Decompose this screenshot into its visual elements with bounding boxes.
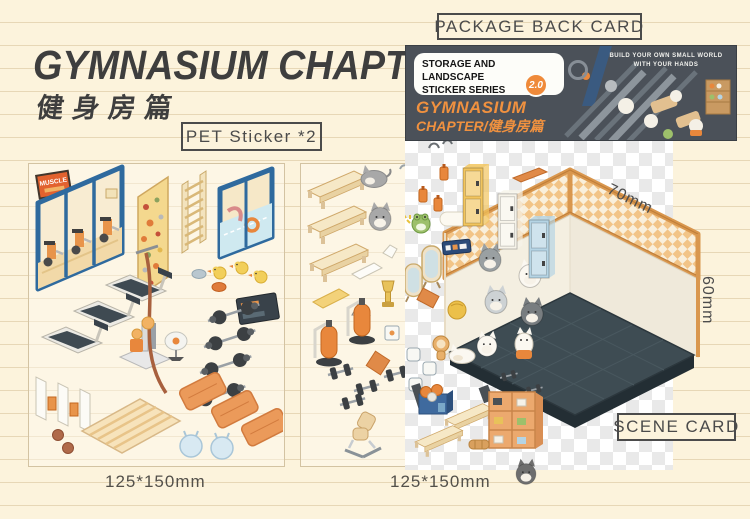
sheet1-size-label: 125*150mm [105,472,206,492]
floor-fan [165,332,187,361]
sheet2-size-label: 125*150mm [390,472,491,492]
sticker-sheet-1-art: MUSCLE [28,163,283,465]
medicine-balls [53,430,74,454]
version-badge: 2.0 [524,73,548,97]
page-title: GYMNASIUM CHAPTER [33,42,461,89]
package-title-line2: CHAPTER/健身房篇 [416,118,544,134]
package-tagline: BUILD YOUR OWN SMALL WORLD WITH YOUR HAN… [602,52,730,70]
yellow-locker [463,164,489,226]
punching-bags [315,298,375,367]
trophy [382,281,394,307]
pool-window [220,169,272,257]
package-back-card: STORAGE AND LANDSCAPE STICKER SERIES 2.0… [405,45,737,141]
dumbbells [326,362,410,410]
wooden-benches [308,171,368,282]
water-bottles [419,164,448,211]
page-subtitle-chinese: 健身房篇 [34,86,183,125]
wood-floor-mat [82,399,180,453]
scene-card-label: SCENE CARD [617,413,736,441]
gray-cat-sitting [369,202,391,231]
yellow-ball [448,301,466,319]
white-piece [383,245,397,258]
wall-bars-ladder [182,171,206,253]
package-title-line1: GYMNASIUM [416,98,544,118]
small-blue-item [438,403,445,412]
package-title: GYMNASIUM CHAPTER/健身房篇 [416,98,544,134]
blue-locker [529,216,555,278]
picture-frames [407,348,436,391]
hop-balls [180,431,233,459]
standing-mirror [422,246,441,288]
package-back-card-label: PACKAGE BACK CARD [437,13,642,40]
scene-height-label: 60mm [698,276,716,324]
shoe-cubby-gates [36,377,90,432]
frog-sticker [405,214,430,233]
white-mat [352,263,382,279]
shoe-roll [469,440,489,449]
pet-sticker-label: PET Sticker *2 [181,122,322,151]
gray-cat-lying [361,165,391,188]
basketball-box [411,383,453,414]
picture-frame [385,326,399,340]
orange-plank [513,168,547,182]
hang-hole [568,60,588,80]
rubber-ducks [207,262,267,284]
scene-bench [415,426,463,457]
paw-doodles [429,140,452,148]
white-locker [498,190,523,249]
product-page: GYMNASIUM CHAPTER 健身房篇 PET Sticker *2 PA… [0,0,750,519]
lion-toy [433,336,449,360]
yellow-mat [313,289,349,308]
